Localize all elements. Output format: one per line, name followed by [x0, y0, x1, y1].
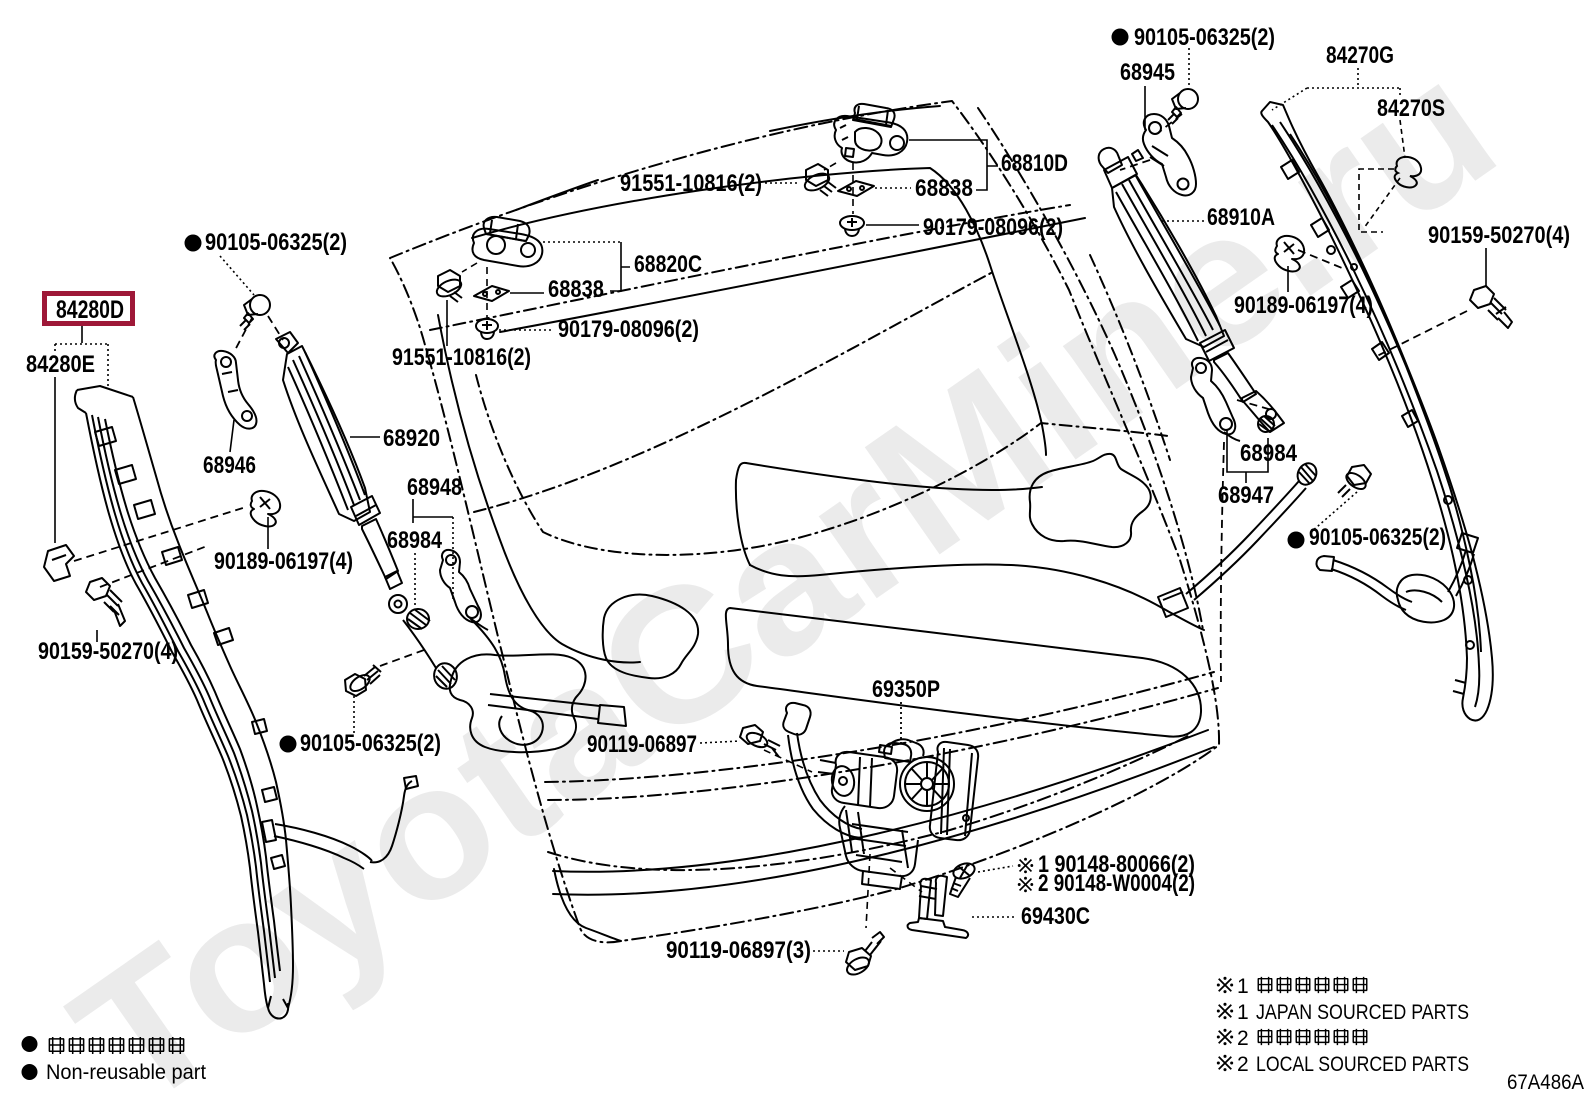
svg-text:Non-reusable part: Non-reusable part — [46, 1061, 206, 1084]
svg-text:84280E: 84280E — [26, 351, 95, 378]
svg-text:90105-06325(2): 90105-06325(2) — [1134, 24, 1275, 51]
svg-text:90119-06897: 90119-06897 — [587, 731, 697, 758]
svg-text:84270G: 84270G — [1326, 42, 1394, 69]
svg-text:69430C: 69430C — [1021, 903, 1090, 930]
svg-text:68920: 68920 — [383, 425, 440, 452]
svg-text:68946: 68946 — [203, 452, 256, 479]
svg-text:90159-50270(4): 90159-50270(4) — [38, 638, 178, 665]
svg-text:68945: 68945 — [1120, 59, 1175, 86]
svg-text:90189-06197(4): 90189-06197(4) — [214, 548, 353, 575]
svg-text:2: 2 — [1237, 1027, 1249, 1050]
svg-text:69350P: 69350P — [872, 676, 940, 703]
svg-text:68838: 68838 — [915, 175, 973, 202]
svg-text:2: 2 — [1237, 1053, 1249, 1076]
svg-text:90159-50270(4): 90159-50270(4) — [1428, 222, 1570, 249]
svg-text:90105-06325(2): 90105-06325(2) — [300, 730, 441, 757]
svg-text:91551-10816(2): 91551-10816(2) — [392, 344, 531, 371]
svg-text:90119-06897(3): 90119-06897(3) — [666, 937, 811, 964]
svg-text:2 90148-W0004(2): 2 90148-W0004(2) — [1038, 870, 1195, 897]
svg-text:90189-06197(4): 90189-06197(4) — [1234, 292, 1373, 319]
svg-text:LOCAL SOURCED PARTS: LOCAL SOURCED PARTS — [1256, 1053, 1469, 1076]
svg-text:68984: 68984 — [387, 527, 443, 554]
svg-text:90105-06325(2): 90105-06325(2) — [205, 229, 347, 256]
svg-text:68838: 68838 — [548, 276, 604, 303]
svg-text:JAPAN SOURCED PARTS: JAPAN SOURCED PARTS — [1256, 1001, 1469, 1024]
svg-text:84280D: 84280D — [56, 296, 124, 324]
svg-text:67A486A: 67A486A — [1507, 1071, 1584, 1094]
svg-text:90179-08096(2): 90179-08096(2) — [558, 316, 699, 343]
svg-text:68947: 68947 — [1218, 482, 1274, 509]
svg-text:90179-08096(2): 90179-08096(2) — [923, 214, 1063, 241]
svg-text:68820C: 68820C — [634, 251, 702, 278]
svg-text:68948: 68948 — [407, 474, 462, 501]
svg-text:1: 1 — [1237, 1001, 1249, 1024]
svg-text:90105-06325(2): 90105-06325(2) — [1309, 524, 1446, 551]
svg-text:84270S: 84270S — [1377, 95, 1445, 122]
svg-text:1: 1 — [1237, 975, 1249, 998]
svg-text:68910A: 68910A — [1207, 204, 1275, 231]
svg-text:91551-10816(2): 91551-10816(2) — [620, 170, 762, 197]
svg-text:68810D: 68810D — [1001, 150, 1068, 177]
